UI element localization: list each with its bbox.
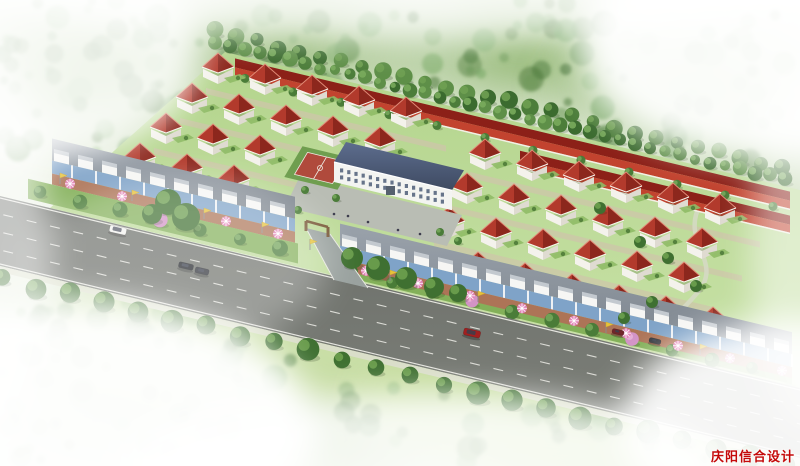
person [419, 233, 422, 236]
umbrella [569, 316, 579, 326]
person [397, 229, 400, 232]
school-entrance [386, 186, 395, 195]
watermark: 庆阳信合设计 [711, 446, 795, 465]
umbrella [517, 303, 527, 313]
umbrella [65, 179, 75, 189]
person [333, 213, 336, 216]
person [347, 215, 350, 218]
watermark-text: 庆阳信合设计 [711, 450, 795, 465]
person [367, 221, 370, 224]
scene-svg [0, 0, 800, 466]
aerial-site-rendering: 庆阳信合设计 [0, 0, 800, 466]
mist [30, 175, 330, 345]
